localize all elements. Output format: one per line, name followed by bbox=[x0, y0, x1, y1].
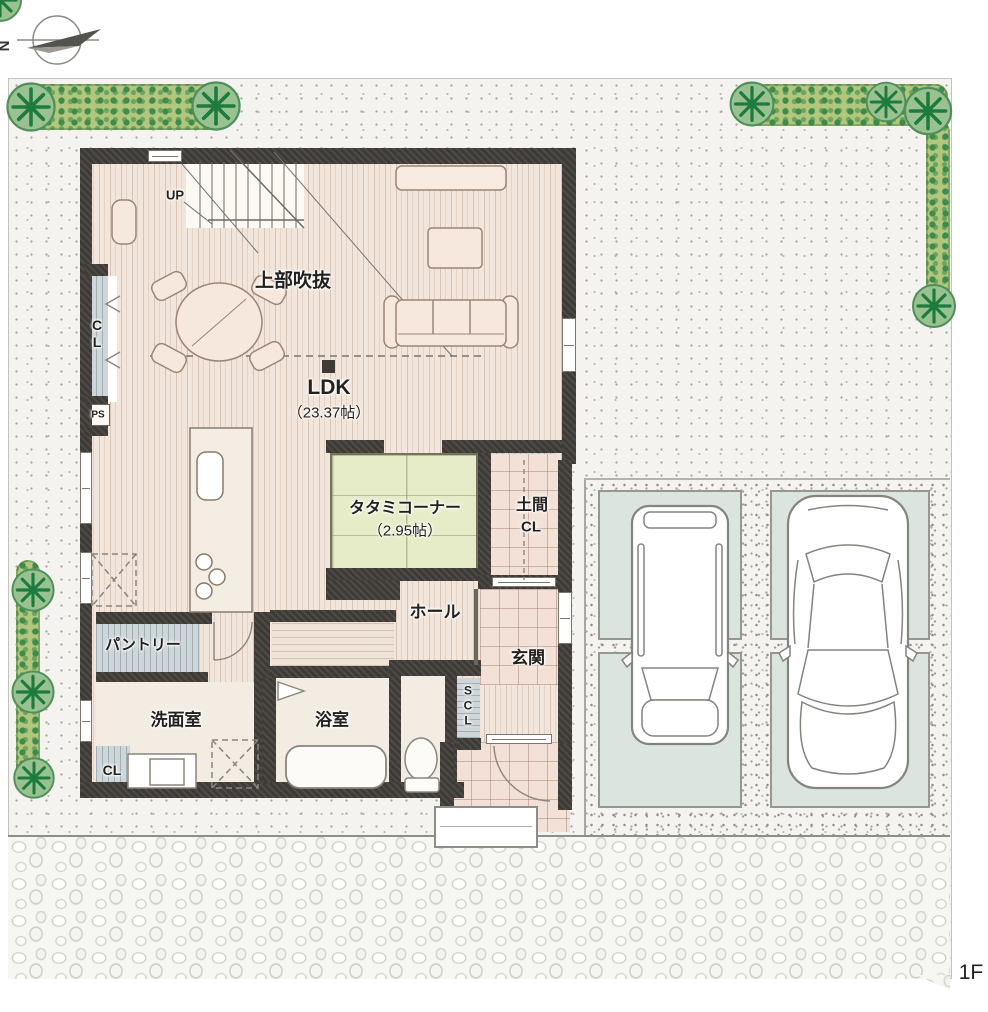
window-left-1 bbox=[80, 452, 92, 524]
window-left-3 bbox=[80, 700, 92, 742]
wall-right-c bbox=[558, 460, 572, 592]
label-hall: ホール bbox=[410, 598, 461, 623]
label-floor-tag: 1F bbox=[959, 961, 984, 985]
window-right bbox=[562, 318, 576, 372]
floor-plan-canvas: N bbox=[0, 0, 988, 1012]
driveway-border-top bbox=[584, 478, 950, 480]
wall-bath-left bbox=[262, 678, 276, 782]
wall-toilet-left bbox=[389, 676, 401, 782]
window-top bbox=[148, 150, 182, 162]
label-washroom: 洗面室 bbox=[151, 706, 202, 731]
label-ldk-size: （23.37帖） bbox=[288, 402, 371, 423]
closet-left-gap bbox=[108, 276, 117, 402]
label-void: 上部吹抜 bbox=[255, 266, 331, 293]
wall-scl-bottom bbox=[457, 738, 481, 750]
genkan-floor bbox=[480, 589, 568, 685]
wall-tatami-top-a bbox=[326, 440, 384, 453]
genkan-hall-edge bbox=[474, 589, 478, 665]
hedge-top-right bbox=[740, 84, 948, 126]
wall-bottom bbox=[82, 782, 464, 798]
window-genkan-right bbox=[558, 592, 572, 644]
tree-icon bbox=[0, 0, 21, 21]
bath-deck-floor bbox=[272, 622, 394, 666]
wall-right-porch bbox=[558, 744, 572, 810]
label-tatami: タタミコーナー bbox=[349, 494, 461, 518]
label-closet-washroom: CL bbox=[103, 762, 122, 778]
porch-step bbox=[434, 806, 538, 848]
label-up: UP bbox=[166, 188, 184, 203]
label-closet-left: CL bbox=[89, 317, 105, 351]
wall-toilet-top bbox=[389, 660, 481, 676]
wall-closet-left-bot bbox=[84, 426, 108, 436]
tatami-step-block bbox=[326, 580, 400, 600]
stairs-area bbox=[186, 162, 304, 228]
wall-closet-left-top bbox=[84, 264, 108, 276]
label-doma-1: 土間 bbox=[516, 491, 548, 515]
porch-step-line bbox=[440, 826, 532, 827]
toilet-floor bbox=[401, 676, 445, 782]
label-ps: PS bbox=[91, 410, 104, 421]
wall-kitchen-pantry bbox=[96, 612, 212, 624]
window-left-2 bbox=[80, 552, 92, 604]
hedge-top-left bbox=[16, 84, 230, 130]
entrance-door bbox=[486, 734, 552, 744]
wall-right-b bbox=[562, 372, 576, 464]
parking-pad-2-lower bbox=[770, 652, 930, 808]
opening-doma-genkan bbox=[492, 577, 556, 587]
parking-pad-1-upper bbox=[598, 490, 742, 640]
parking-pad-1-lower bbox=[598, 652, 742, 808]
label-ldk: LDK bbox=[307, 376, 350, 400]
hedge-right bbox=[926, 120, 950, 302]
label-genkan: 玄関 bbox=[511, 644, 545, 669]
stone-paving bbox=[8, 835, 950, 979]
label-scl: SCL bbox=[461, 684, 475, 729]
driveway-border bbox=[584, 478, 586, 835]
label-doma-2: CL bbox=[521, 519, 541, 536]
compass-north-arrow: N bbox=[0, 16, 101, 64]
wall-tatami-top-b bbox=[442, 440, 562, 453]
label-bathroom: 浴室 bbox=[315, 706, 349, 731]
parking-pad-2-upper bbox=[770, 490, 930, 640]
hedge-left bbox=[16, 560, 40, 786]
wall-tatami-doma bbox=[478, 453, 491, 585]
wall-deck-top bbox=[270, 610, 396, 622]
label-tatami-size: （2.95帖） bbox=[368, 520, 442, 541]
wall-right-a bbox=[562, 148, 576, 318]
wall-porch-left bbox=[440, 742, 454, 810]
compass-letter: N bbox=[0, 41, 13, 52]
wall-right-d bbox=[558, 644, 572, 744]
wall-pantry-bottom bbox=[96, 672, 208, 682]
wall-closet-left-mid bbox=[84, 396, 108, 404]
label-pantry: パントリー bbox=[105, 634, 181, 655]
wall-bath-top bbox=[270, 666, 396, 678]
